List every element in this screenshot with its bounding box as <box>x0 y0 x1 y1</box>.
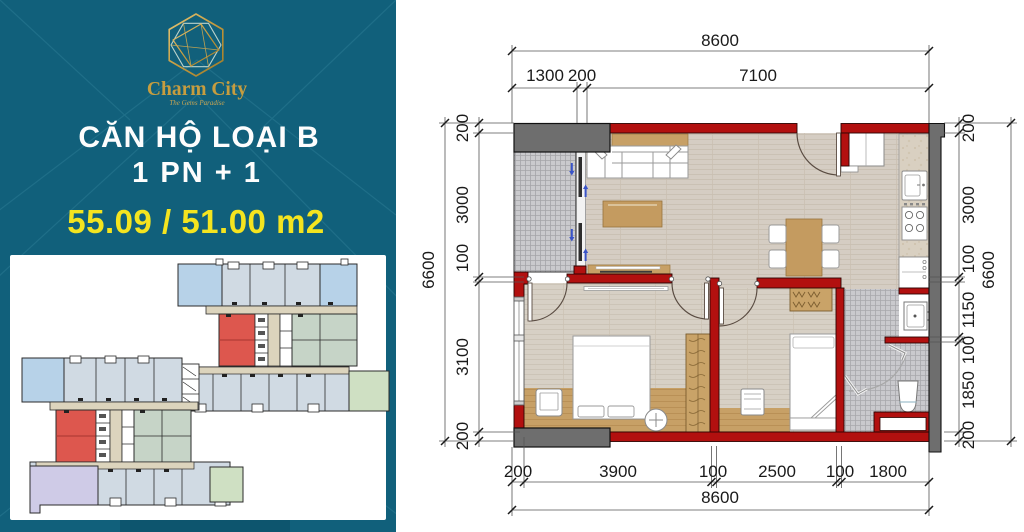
svg-text:1850: 1850 <box>959 371 978 409</box>
svg-text:3000: 3000 <box>959 186 978 224</box>
svg-text:6600: 6600 <box>419 251 438 289</box>
svg-text:1150: 1150 <box>959 292 978 329</box>
svg-text:55.09 / 51.00 m2: 55.09 / 51.00 m2 <box>67 203 325 240</box>
svg-text:100: 100 <box>453 244 472 272</box>
svg-text:1800: 1800 <box>869 462 907 481</box>
svg-text:100: 100 <box>959 245 978 273</box>
svg-text:200: 200 <box>453 114 472 142</box>
svg-text:1 PN + 1: 1 PN + 1 <box>132 157 262 189</box>
svg-text:8600: 8600 <box>701 488 739 507</box>
svg-text:200: 200 <box>959 114 978 142</box>
svg-text:3900: 3900 <box>599 462 637 481</box>
svg-text:6600: 6600 <box>979 251 998 289</box>
svg-text:200: 200 <box>453 422 472 450</box>
svg-text:100: 100 <box>826 462 854 481</box>
svg-text:The Gems Paradise: The Gems Paradise <box>169 99 224 107</box>
svg-text:100: 100 <box>699 462 727 481</box>
svg-text:200: 200 <box>504 462 532 481</box>
svg-text:100: 100 <box>959 336 978 364</box>
svg-text:200: 200 <box>568 66 596 85</box>
svg-text:7100: 7100 <box>739 66 777 85</box>
svg-text:1300: 1300 <box>526 66 564 85</box>
svg-text:Charm City: Charm City <box>147 79 247 100</box>
svg-text:CĂN HỘ LOẠI B: CĂN HỘ LOẠI B <box>78 120 319 154</box>
svg-text:3000: 3000 <box>453 186 472 224</box>
svg-text:200: 200 <box>959 421 978 449</box>
svg-text:2500: 2500 <box>758 462 796 481</box>
svg-text:3100: 3100 <box>453 338 472 376</box>
svg-text:8600: 8600 <box>701 31 739 50</box>
